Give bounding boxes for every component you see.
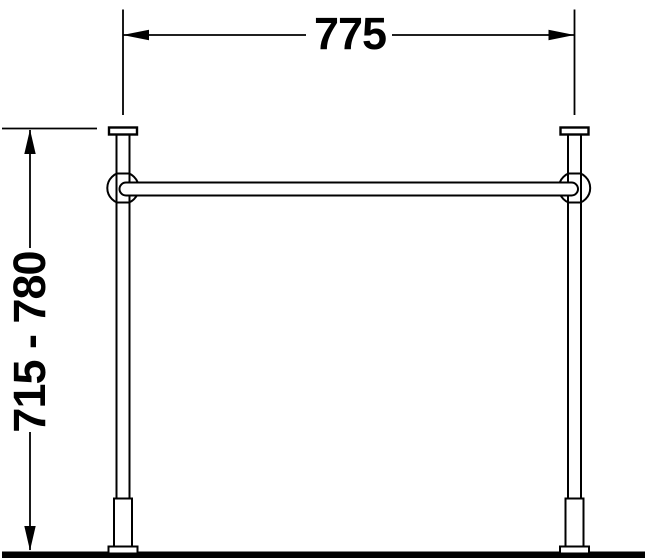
- width-dimension-label: 775: [290, 11, 410, 57]
- height-dimension-label: 715 - 780: [7, 232, 53, 452]
- ground-line: [2, 552, 645, 559]
- height-arrowhead-up-icon: [24, 130, 35, 155]
- left-top-flange: [109, 128, 137, 135]
- width-arrowhead-left-icon: [123, 30, 149, 41]
- left-base-plate: [109, 547, 138, 554]
- right-top-flange: [561, 128, 589, 135]
- console-frame-drawing: [0, 0, 651, 559]
- crossbar-tube: [120, 183, 579, 196]
- width-arrowhead-right-icon: [549, 30, 575, 41]
- right-adjustable-foot: [566, 499, 584, 547]
- right-base-plate: [560, 547, 589, 554]
- technical-drawing: 775 715 - 780: [0, 0, 651, 559]
- left-adjustable-foot: [114, 499, 132, 547]
- height-arrowhead-down-icon: [24, 526, 35, 551]
